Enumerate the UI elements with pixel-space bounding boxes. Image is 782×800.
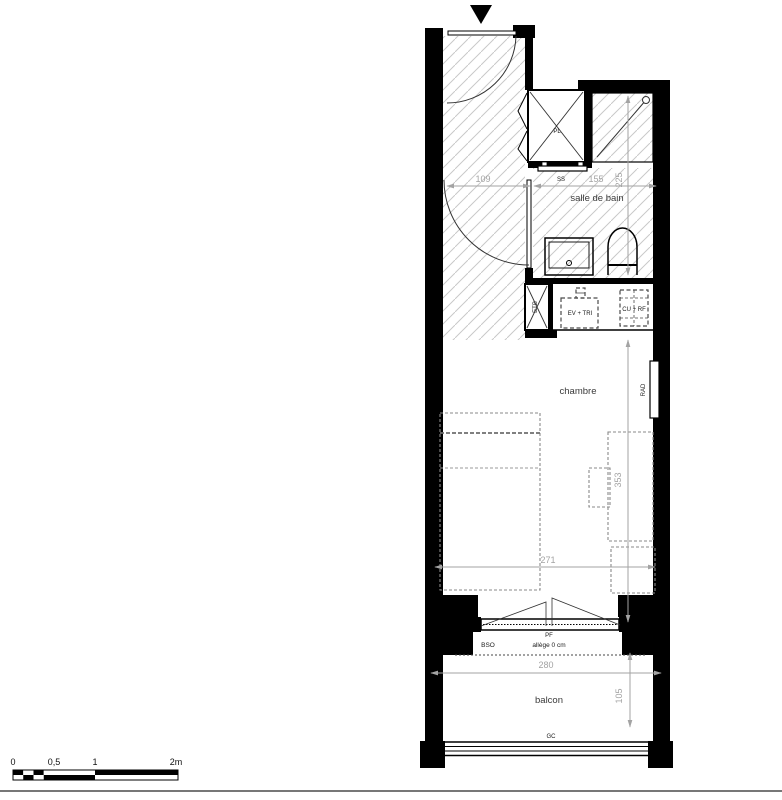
dim-entry-width: 109 xyxy=(475,174,490,184)
dim-bathroom-width: 155 xyxy=(588,174,603,184)
room-label-balcony: balcon xyxy=(535,695,563,706)
radiator-label: RAD xyxy=(641,383,647,396)
bed-outline xyxy=(440,413,540,590)
towel-dryer-label: SS xyxy=(557,177,565,183)
side-table-outline xyxy=(611,547,655,593)
dim-bedroom-depth: 353 xyxy=(613,472,623,487)
french-window-label: PF xyxy=(545,633,553,639)
closet: PL xyxy=(518,90,585,162)
dim-balcony-width: 280 xyxy=(538,660,553,670)
dim-bathroom-depth: 225 xyxy=(614,172,624,187)
scale-bar: 0 0,5 1 2m xyxy=(10,757,182,780)
closet-label: PL xyxy=(553,129,561,135)
balcony: balcon GC xyxy=(420,695,673,768)
sill-label: allège 0 cm xyxy=(532,642,565,649)
duct-label: ETB xyxy=(533,301,539,313)
entrance-arrow-icon xyxy=(470,5,492,24)
entry-hall-hatch xyxy=(443,36,525,340)
dim-bedroom-width: 271 xyxy=(540,555,555,565)
sink-unit-label: EV + TRI xyxy=(568,311,593,317)
scale-tick-1: 1 xyxy=(92,757,97,767)
shower-head-icon xyxy=(643,97,650,104)
balcony-post xyxy=(648,741,673,768)
chair-outline xyxy=(589,468,610,507)
floor-plan-page: PL SS ETB EV + TRI CU xyxy=(0,0,782,800)
kitchenette-label: CU + RF xyxy=(622,307,646,313)
guardrail xyxy=(443,742,653,756)
radiator: RAD xyxy=(641,361,659,418)
scale-tick-0: 0 xyxy=(10,757,15,767)
guardrail-label: GC xyxy=(547,734,557,740)
scale-tick-05: 0,5 xyxy=(48,757,61,767)
blind-label: BSO xyxy=(481,642,495,649)
french-window: PF BSO allège 0 cm xyxy=(455,598,645,655)
dim-balcony-depth: 105 xyxy=(614,688,624,703)
room-label-bedroom: chambre xyxy=(560,386,597,397)
bedroom-furniture xyxy=(440,413,655,593)
scale-tick-2m: 2m xyxy=(170,757,183,767)
floor-plan-drawing: PL SS ETB EV + TRI CU xyxy=(0,0,782,800)
room-label-bathroom: salle de bain xyxy=(570,193,623,204)
kitchenette-zone: ETB EV + TRI CU + RF xyxy=(525,284,653,330)
balcony-post xyxy=(420,741,445,768)
